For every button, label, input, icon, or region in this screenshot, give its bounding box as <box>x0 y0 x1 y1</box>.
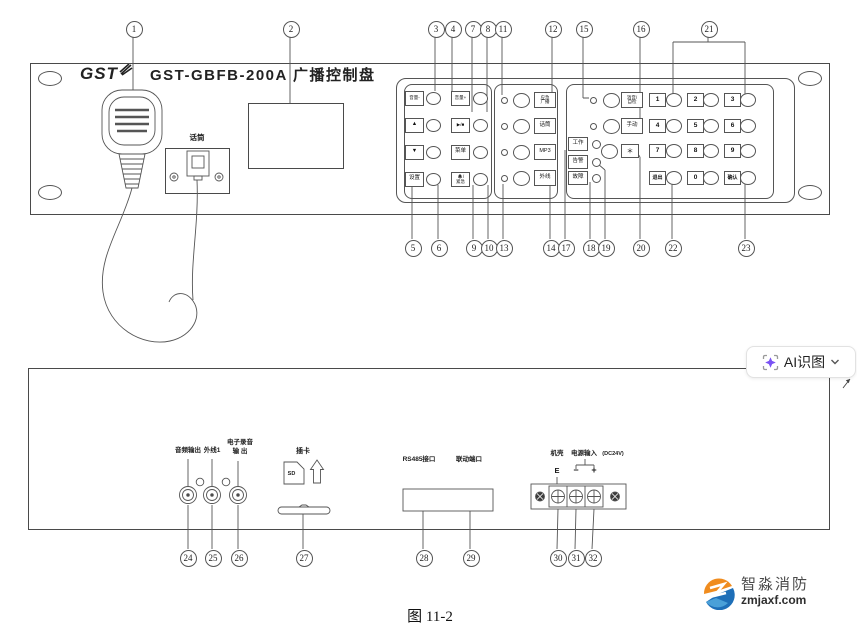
callout-20: 20 <box>633 240 650 257</box>
key-5-button <box>703 119 719 133</box>
mount-hole <box>38 185 62 200</box>
key-1: 1 <box>649 93 666 107</box>
voltage-label: (DC24V) <box>600 452 626 458</box>
key-settings: 设置 <box>405 172 424 187</box>
panel-title: GST-GBFB-200A 广播控制盘 <box>150 64 375 85</box>
key-emergency-button <box>473 173 488 186</box>
key-9-button <box>740 144 756 158</box>
power-input-label: 电源输入 <box>568 451 600 458</box>
callout-27: 27 <box>296 550 313 567</box>
led-ch-ext-line <box>501 175 508 182</box>
ch-emergency-broadcast-label: 应急广播 <box>534 92 556 108</box>
key-up: ▲ <box>405 118 424 133</box>
mount-hole <box>38 71 62 86</box>
figure-canvas: GST GST-GBFB-200A 广播控制盘 话筒 <box>0 0 857 632</box>
led-ch-mic <box>501 123 508 130</box>
key-vol-minus: 音量- <box>405 91 424 106</box>
ai-recognize-button[interactable]: AI识图 <box>746 346 856 378</box>
key-4-button <box>666 119 682 133</box>
callout-6: 6 <box>431 240 448 257</box>
key-mute-selfcheck-button <box>603 93 620 108</box>
ch-mic-button <box>513 119 530 134</box>
chassis-label: 机壳 <box>546 451 568 458</box>
label-rec-out-2: 输 出 <box>224 449 256 456</box>
cursor-arrow-icon <box>843 379 850 388</box>
callout-25: 25 <box>205 550 222 567</box>
key-exit: 退出 <box>649 171 666 185</box>
led-fault-label: 故障 <box>568 171 588 185</box>
key-confirm: 确认 <box>724 171 741 185</box>
callout-18: 18 <box>583 240 600 257</box>
key-down-button <box>426 146 441 159</box>
callout-24: 24 <box>180 550 197 567</box>
label-rec-out: 电子录音 <box>224 440 256 447</box>
key-exit-button <box>666 171 682 185</box>
key-7-button <box>666 144 682 158</box>
key-8: 8 <box>687 144 704 158</box>
rear-panel <box>28 368 830 530</box>
key-vol-minus-button <box>426 92 441 105</box>
ch-emergency-broadcast-button <box>513 93 530 108</box>
key-5: 5 <box>687 119 704 133</box>
key-7: 7 <box>649 144 666 158</box>
key-menu-button <box>473 146 488 159</box>
callout-12: 12 <box>545 21 562 38</box>
callout-28: 28 <box>416 550 433 567</box>
key-vol-plus-button <box>473 92 488 105</box>
key-confirm-button <box>740 171 756 185</box>
callout-1: 1 <box>126 21 143 38</box>
terminal-plus-label: + <box>589 466 599 475</box>
terminal-minus-label: − <box>571 466 581 475</box>
terminal-e-label: E <box>552 467 562 475</box>
callout-7: 7 <box>465 21 482 38</box>
callout-32: 32 <box>585 550 602 567</box>
card-slot-label: 插卡 <box>288 448 318 455</box>
callout-3: 3 <box>428 21 445 38</box>
led-key-mute-selfcheck <box>590 97 597 104</box>
key-2-button <box>703 93 719 107</box>
brand-logo: GST <box>80 64 133 84</box>
mount-hole <box>798 71 822 86</box>
key-2: 2 <box>687 93 704 107</box>
watermark-site: zmjaxf.com <box>741 594 809 608</box>
key-down: ▼ <box>405 145 424 160</box>
key-6: 6 <box>724 119 741 133</box>
callout-9: 9 <box>466 240 483 257</box>
lcd-display <box>248 103 344 169</box>
callout-15: 15 <box>576 21 593 38</box>
key-8-button <box>703 144 719 158</box>
callout-8: 8 <box>480 21 497 38</box>
key-manual-label: 手动 <box>621 118 643 134</box>
led-ch-mp3 <box>501 149 508 156</box>
led-working-label: 工作 <box>568 137 588 151</box>
mic-jack-label: 话筒 <box>183 134 211 142</box>
key-play-stop: ▶/■ <box>451 118 470 133</box>
callout-5: 5 <box>405 240 422 257</box>
callout-14: 14 <box>543 240 560 257</box>
mount-hole <box>798 185 822 200</box>
watermark: 智淼消防 zmjaxf.com <box>700 574 809 610</box>
key-manual-button <box>603 119 620 134</box>
ch-mp3-label: MP3 <box>534 144 556 160</box>
key-0-button <box>703 171 719 185</box>
led-ch-emergency-broadcast <box>501 97 508 104</box>
sd-text: SD <box>285 472 298 478</box>
ch-mp3-button <box>513 145 530 160</box>
key-1-button <box>666 93 682 107</box>
ch-mic-label: 话筒 <box>534 118 556 134</box>
key-star-button <box>601 144 618 159</box>
led-alert <box>592 158 601 167</box>
key-up-button <box>426 119 441 132</box>
led-working <box>592 140 601 149</box>
figure-caption: 图 11-2 <box>355 605 505 626</box>
key-3: 3 <box>724 93 741 107</box>
key-0: 0 <box>687 171 704 185</box>
ai-sparkle-icon <box>762 354 779 371</box>
callout-21: 21 <box>701 21 718 38</box>
callout-29: 29 <box>463 550 480 567</box>
callout-11: 11 <box>495 21 512 38</box>
chevron-down-icon[interactable] <box>830 358 840 366</box>
brand-fan-icon <box>119 64 133 76</box>
callout-31: 31 <box>568 550 585 567</box>
callout-22: 22 <box>665 240 682 257</box>
watermark-name: 智淼消防 <box>741 576 809 593</box>
key-star-label: ＊ <box>621 144 639 158</box>
key-play-stop-button <box>473 119 488 132</box>
key-settings-button <box>426 173 441 186</box>
ch-ext-line-button <box>513 171 530 186</box>
callout-4: 4 <box>445 21 462 38</box>
linkage-port-label: 联动端口 <box>454 457 484 464</box>
led-key-manual <box>590 123 597 130</box>
callout-26: 26 <box>231 550 248 567</box>
key-emergency-label: 紧急 <box>456 180 465 185</box>
ai-button-label: AI识图 <box>784 352 825 372</box>
rs485-label: RS485接口 <box>398 457 440 464</box>
mic-jack-plate <box>165 148 230 194</box>
key-vol-plus: 音量+ <box>451 91 470 106</box>
callout-13: 13 <box>496 240 513 257</box>
callout-16: 16 <box>633 21 650 38</box>
key-9: 9 <box>724 144 741 158</box>
ch-ext-line-label: 外线 <box>534 170 556 186</box>
led-alert-label: 告警 <box>568 155 588 169</box>
callout-30: 30 <box>550 550 567 567</box>
key-3-button <box>740 93 756 107</box>
key-emergency: /紧急 <box>451 172 470 187</box>
watermark-logo-icon <box>700 574 736 610</box>
callout-23: 23 <box>738 240 755 257</box>
callout-19: 19 <box>598 240 615 257</box>
key-6-button <box>740 119 756 133</box>
led-fault <box>592 174 601 183</box>
brand-text: GST <box>80 64 118 84</box>
callout-17: 17 <box>558 240 575 257</box>
key-4: 4 <box>649 119 666 133</box>
callout-2: 2 <box>283 21 300 38</box>
key-mute-selfcheck-label: 消音/自检 <box>621 92 643 108</box>
callout-10: 10 <box>481 240 498 257</box>
key-menu: 菜单 <box>451 145 470 160</box>
